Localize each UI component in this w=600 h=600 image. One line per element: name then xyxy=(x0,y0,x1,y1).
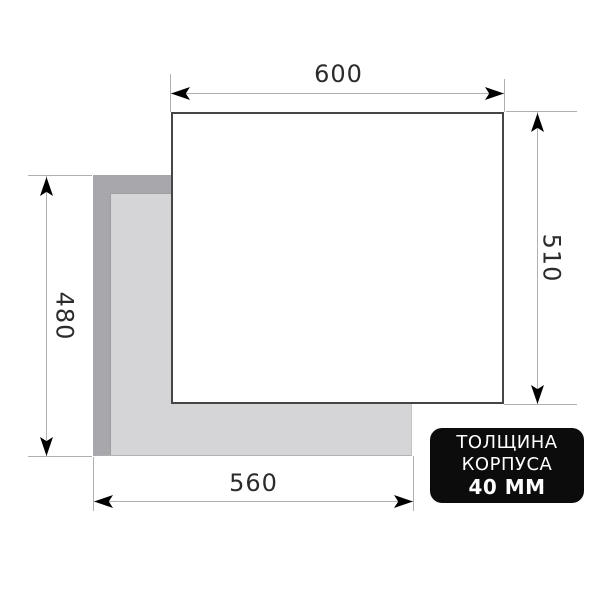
badge-text-line2: КОРПУСА xyxy=(462,454,553,476)
hob-panel xyxy=(171,112,504,404)
body-thickness-badge: ТОЛЩИНА КОРПУСА 40 ММ xyxy=(430,428,584,503)
dimension-line xyxy=(46,176,47,456)
dimension-label-left: 480 xyxy=(52,278,78,355)
dimension-line xyxy=(93,501,413,502)
installation-diagram: 600 510 480 560 ТОЛЩИНА КОРПУСА 40 ММ xyxy=(0,0,600,600)
extension-line xyxy=(506,111,577,112)
extension-line xyxy=(28,456,92,457)
dimension-label-top: 600 xyxy=(300,61,377,87)
extension-line xyxy=(504,79,505,112)
dimension-label-bottom: 560 xyxy=(215,470,292,496)
dimension-line xyxy=(171,93,504,94)
extension-line xyxy=(93,457,94,511)
badge-text-line1: ТОЛЩИНА xyxy=(456,432,557,454)
extension-line xyxy=(28,175,92,176)
badge-text-line3: 40 ММ xyxy=(468,476,545,499)
extension-line xyxy=(504,404,577,405)
dimension-label-right: 510 xyxy=(539,220,565,297)
extension-line xyxy=(413,456,414,511)
